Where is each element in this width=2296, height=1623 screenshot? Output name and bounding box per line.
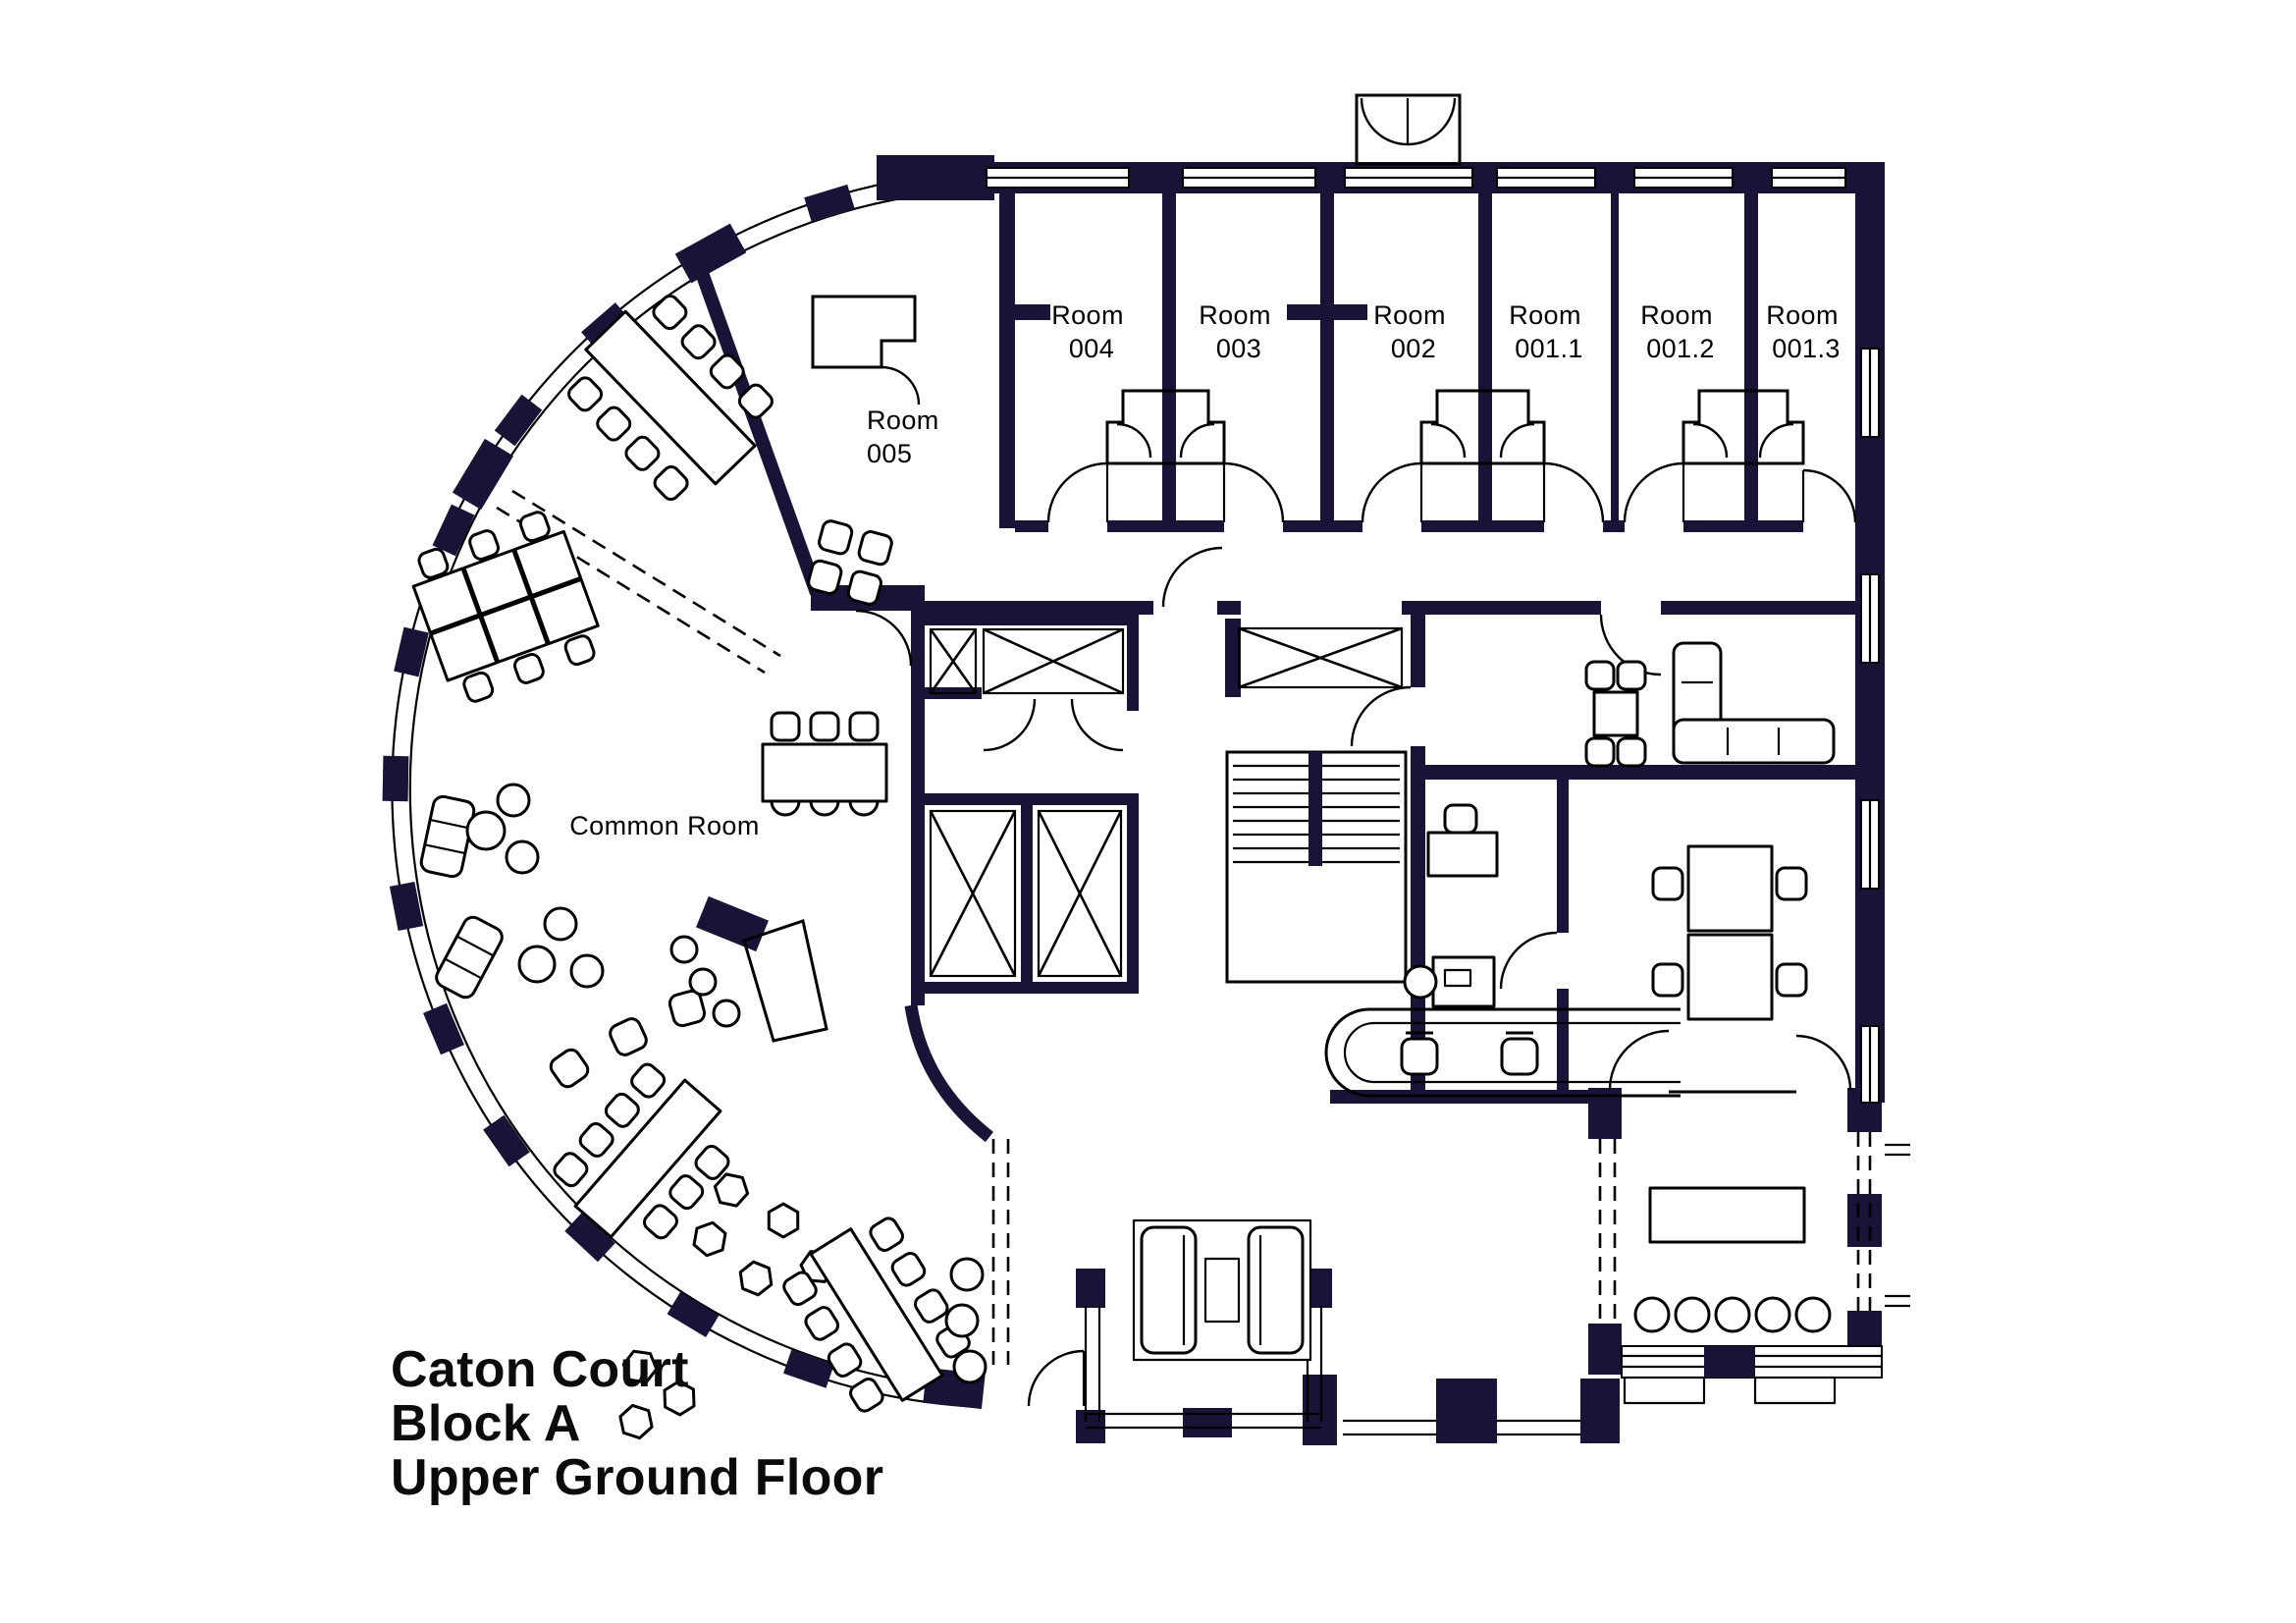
title-line-3: Upper Ground Floor	[391, 1449, 883, 1506]
title-line-2: Block A	[391, 1395, 581, 1452]
top-windows	[987, 168, 1845, 188]
scatter-chairs	[548, 989, 707, 1090]
room-003-label: Room 003	[1199, 300, 1279, 363]
facade-junction-pier	[675, 224, 746, 284]
core-curved-wall	[911, 1005, 989, 1137]
room-002-label: Room 002	[1373, 300, 1454, 363]
room-001-1-label: Room 001.1	[1509, 300, 1589, 363]
title-line-1: Caton Court	[391, 1341, 689, 1398]
round-chair	[498, 784, 529, 816]
room-004-label: Room 004	[1051, 300, 1132, 363]
room-labels: Room 004 Room 003 Room 002 Room 001.1 Ro…	[569, 300, 1845, 840]
floor-plan-drawing: Room 004 Room 003 Room 002 Room 001.1 Ro…	[0, 0, 2296, 1623]
long-table	[1650, 1188, 1804, 1242]
floor-plan-page: Room 004 Room 003 Room 002 Room 001.1 Ro…	[0, 0, 2296, 1623]
bottom-right-window-band	[1622, 1346, 1882, 1403]
round-table	[467, 812, 505, 849]
lounge-group-upper	[419, 784, 538, 879]
reception-counter	[1326, 1009, 1681, 1096]
facade-junction-pier	[453, 439, 513, 510]
top-left-junction	[877, 155, 994, 200]
sofa	[433, 914, 506, 1001]
coffee-table	[1205, 1259, 1239, 1322]
common-room-table	[763, 713, 886, 815]
core-wall	[911, 609, 925, 1005]
chair	[772, 801, 799, 815]
exterior-stub-lines	[1885, 1145, 1910, 1306]
bottom-right-room	[1635, 1188, 1830, 1331]
corner-sofa	[1674, 643, 1834, 763]
common-room-label: Common Room	[569, 811, 759, 840]
service-shaft-icon	[1239, 628, 1402, 687]
lounge-table	[1586, 662, 1645, 766]
sofa	[1142, 1227, 1196, 1353]
room-001-2-label: Room 001.2	[1640, 300, 1721, 363]
top-entrance-bay	[1357, 95, 1460, 164]
elevator-shaft-icon	[931, 629, 1123, 693]
room-001-3-label: Room 001.3	[1766, 300, 1846, 363]
facing-sofas-lounge	[1134, 1220, 1310, 1360]
stool	[1635, 1298, 1669, 1331]
office-desk-1	[1428, 805, 1497, 876]
chair	[651, 293, 690, 332]
meeting-tables	[1653, 846, 1806, 1019]
kitchenette-counter	[813, 297, 915, 367]
lounge-group-lower	[433, 908, 603, 1001]
office-chair	[1402, 1039, 1437, 1074]
desk-cluster	[404, 506, 609, 708]
room-005-label: Room 005	[867, 406, 947, 468]
bathroom-pods	[1107, 391, 1803, 463]
sofa	[1249, 1227, 1303, 1353]
room-005-meeting-table	[554, 280, 787, 514]
round-chair-trio	[946, 1259, 986, 1382]
staircase-icon	[1227, 752, 1406, 982]
